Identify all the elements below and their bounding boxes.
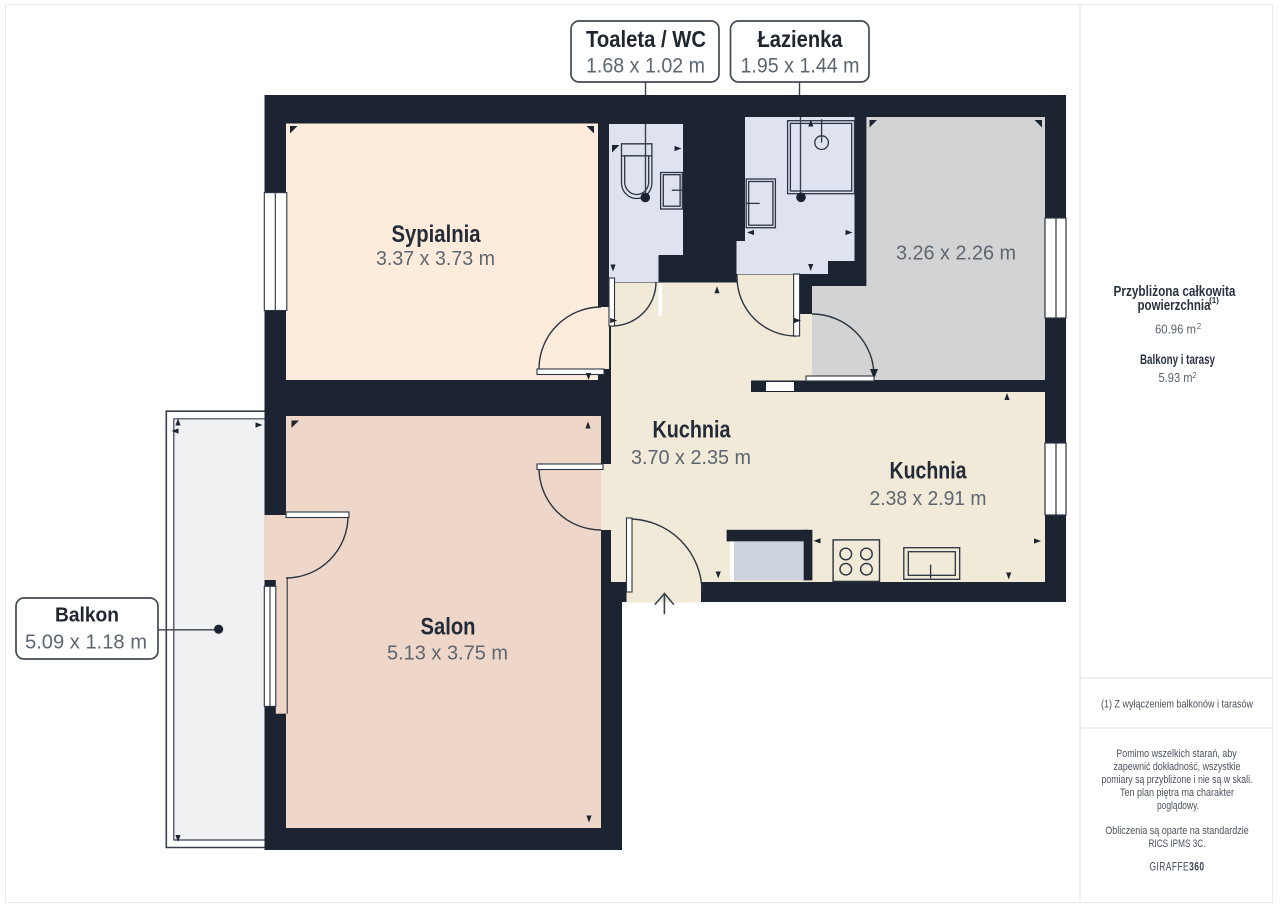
- svg-text:3.70 x 2.35 m: 3.70 x 2.35 m: [631, 447, 751, 469]
- svg-text:Kuchnia: Kuchnia: [653, 417, 732, 444]
- svg-text:Obliczenia są oparte na standa: Obliczenia są oparte na standardzie: [1105, 825, 1249, 837]
- svg-text:Toaleta / WC: Toaleta / WC: [586, 26, 706, 52]
- svg-text:Balkony i tarasy: Balkony i tarasy: [1140, 351, 1215, 367]
- svg-text:5.13 x 3.75 m: 5.13 x 3.75 m: [387, 643, 508, 665]
- svg-text:2: 2: [1197, 322, 1202, 331]
- svg-text:2: 2: [1192, 371, 1197, 380]
- svg-text:60.96 m: 60.96 m: [1155, 322, 1196, 337]
- svg-text:Ten plan piętra ma charakter: Ten plan piętra ma charakter: [1120, 787, 1234, 799]
- svg-text:3.37 x 3.73 m: 3.37 x 3.73 m: [376, 248, 495, 270]
- svg-text:poglądowy.: poglądowy.: [1157, 800, 1199, 812]
- svg-text:Łazienka: Łazienka: [758, 26, 843, 52]
- svg-text:Balkon: Balkon: [55, 604, 119, 627]
- svg-text:GIRAFFE360: GIRAFFE360: [1150, 862, 1205, 874]
- svg-text:Sypialnia: Sypialnia: [392, 221, 482, 248]
- svg-text:zapewnić dokładność, wszystkie: zapewnić dokładność, wszystkie: [1114, 761, 1241, 773]
- svg-text:2.38 x 2.91 m: 2.38 x 2.91 m: [870, 488, 987, 510]
- svg-text:(1): (1): [1209, 296, 1219, 305]
- svg-text:pomiary są przybliżone i nie s: pomiary są przybliżone i nie są w skali.: [1102, 774, 1253, 786]
- svg-text:Salon: Salon: [421, 614, 476, 641]
- svg-text:3.26 x 2.26 m: 3.26 x 2.26 m: [896, 243, 1016, 265]
- svg-text:1.68 x 1.02 m: 1.68 x 1.02 m: [586, 55, 705, 78]
- svg-text:powierzchnia: powierzchnia: [1138, 297, 1211, 314]
- svg-text:(1) Z wyłączeniem balkonów i t: (1) Z wyłączeniem balkonów i tarasów: [1101, 699, 1253, 711]
- svg-text:1.95 x 1.44 m: 1.95 x 1.44 m: [741, 55, 860, 78]
- svg-text:RICS IPMS 3C.: RICS IPMS 3C.: [1149, 838, 1206, 850]
- svg-text:5.93 m: 5.93 m: [1159, 370, 1193, 385]
- svg-text:5.09 x 1.18 m: 5.09 x 1.18 m: [25, 632, 147, 654]
- svg-text:Pomimo wszelkich starań, aby: Pomimo wszelkich starań, aby: [1116, 748, 1237, 760]
- svg-text:Kuchnia: Kuchnia: [890, 458, 968, 485]
